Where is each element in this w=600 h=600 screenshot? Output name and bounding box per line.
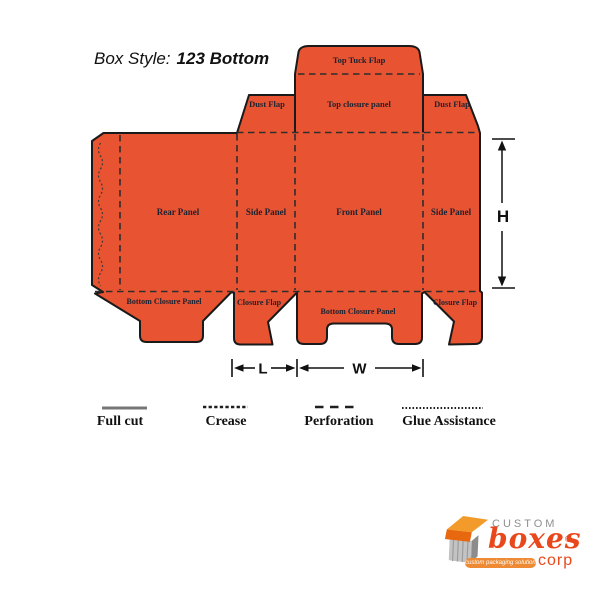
label-closure-flap-left: Closure Flap [237, 298, 282, 307]
legend-label-glue-assistance: Glue Assistance [402, 414, 496, 430]
label-bottom-closure-front: Bottom Closure Panel [321, 307, 397, 316]
legend-label-crease: Crease [206, 414, 247, 430]
registered-trademark-icon: ® [565, 534, 572, 544]
label-front-panel: Front Panel [336, 207, 382, 217]
label-dust-flap-right: Dust Flap [434, 99, 470, 109]
height-arrow-down [498, 277, 506, 287]
legend-label-perforation: Perforation [304, 414, 373, 430]
width-dimension-label: W [352, 361, 367, 378]
label-top-tuck-flap: Top Tuck Flap [333, 55, 386, 65]
width-arrow-left [299, 364, 309, 371]
page-background: Box Style:123 Bottom Top Tuck Flap Dust … [0, 0, 600, 600]
label-closure-flap-right: Closure Flap [433, 298, 478, 307]
legend-label-full-cut: Full cut [97, 414, 143, 430]
label-side-panel-left: Side Panel [246, 207, 287, 217]
length-arrow-right [286, 364, 296, 371]
label-bottom-closure-rear: Bottom Closure Panel [127, 297, 203, 306]
length-dimension-label: L [258, 361, 267, 378]
height-arrow-up [498, 141, 506, 151]
logo-lid-top [447, 516, 488, 532]
width-arrow-right [412, 364, 422, 371]
label-top-closure-panel: Top closure panel [327, 99, 391, 109]
label-rear-panel: Rear Panel [157, 207, 200, 217]
label-side-panel-right: Side Panel [431, 207, 472, 217]
logo-corp-text: corp [538, 552, 573, 570]
label-dust-flap-left: Dust Flap [249, 99, 285, 109]
logo-tagline: custom packaging solutions [465, 558, 536, 568]
height-dimension-label: H [497, 207, 509, 226]
logo: custom boxes ® custom packaging solution… [443, 508, 593, 590]
length-arrow-left [234, 364, 244, 371]
